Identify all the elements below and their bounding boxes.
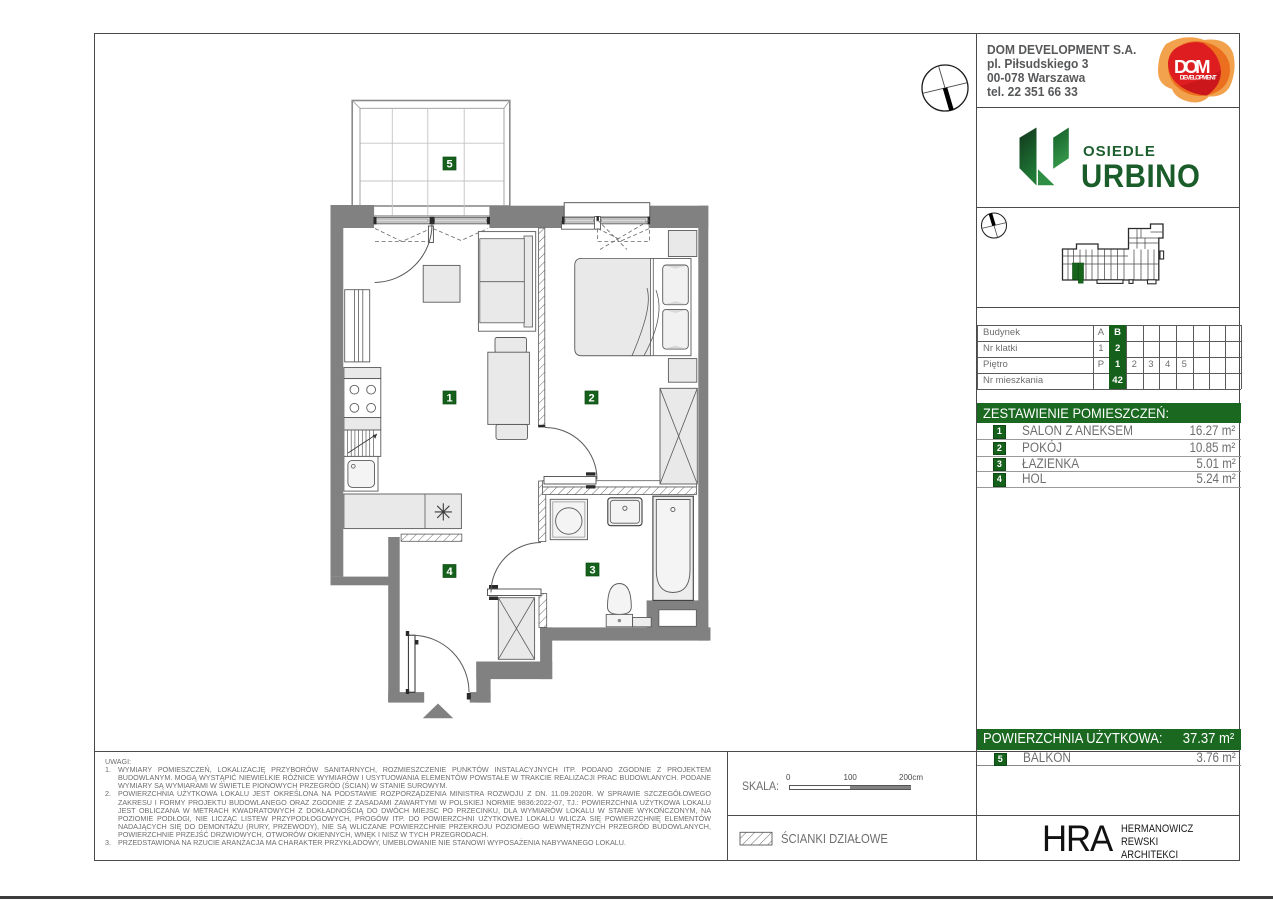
svg-text:1: 1 xyxy=(446,392,452,404)
svg-text:2: 2 xyxy=(588,392,594,404)
svg-text:3: 3 xyxy=(589,564,595,576)
svg-text:5: 5 xyxy=(446,158,452,170)
svg-text:4: 4 xyxy=(446,566,453,578)
svg-text:DEVELOPMENT: DEVELOPMENT xyxy=(1180,75,1217,82)
